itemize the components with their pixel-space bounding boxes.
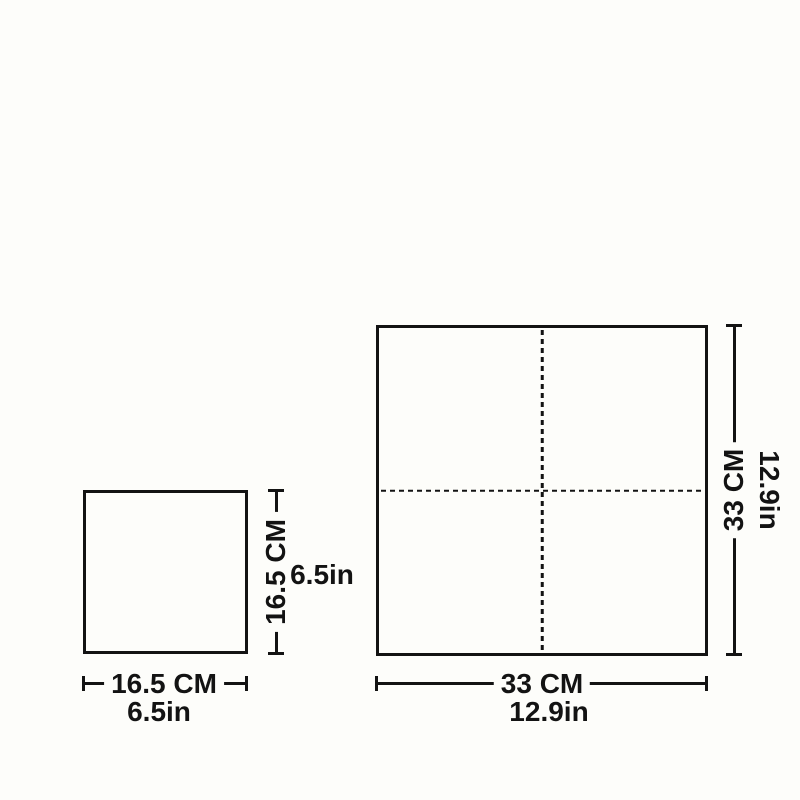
large-square-height-cm-label: 33 CM — [720, 442, 748, 538]
dimension-end-cap — [705, 676, 708, 691]
small-square-width-in-label: 6.5in — [127, 698, 191, 726]
dimension-end-cap — [268, 652, 284, 655]
small-square-height-cm-label: 16.5 CM — [262, 512, 290, 632]
dimension-end-cap — [726, 653, 742, 656]
horizontal-fold-dashed-line — [381, 489, 703, 492]
napkin-dimensions-diagram: 16.5 CM 6.5in 16.5 CM 6.5in 33 CM 12.9in… — [0, 0, 800, 800]
large-square-width-in-label: 12.9in — [509, 698, 588, 726]
dimension-end-cap — [245, 676, 248, 691]
small-square-width-cm-label: 16.5 CM — [104, 670, 224, 698]
large-square-width-cm-label: 33 CM — [494, 670, 590, 698]
small-square — [83, 490, 248, 654]
small-square-height-in-label: 6.5in — [290, 561, 354, 589]
large-square — [376, 325, 708, 656]
large-square-height-in-label: 12.9in — [755, 450, 783, 529]
